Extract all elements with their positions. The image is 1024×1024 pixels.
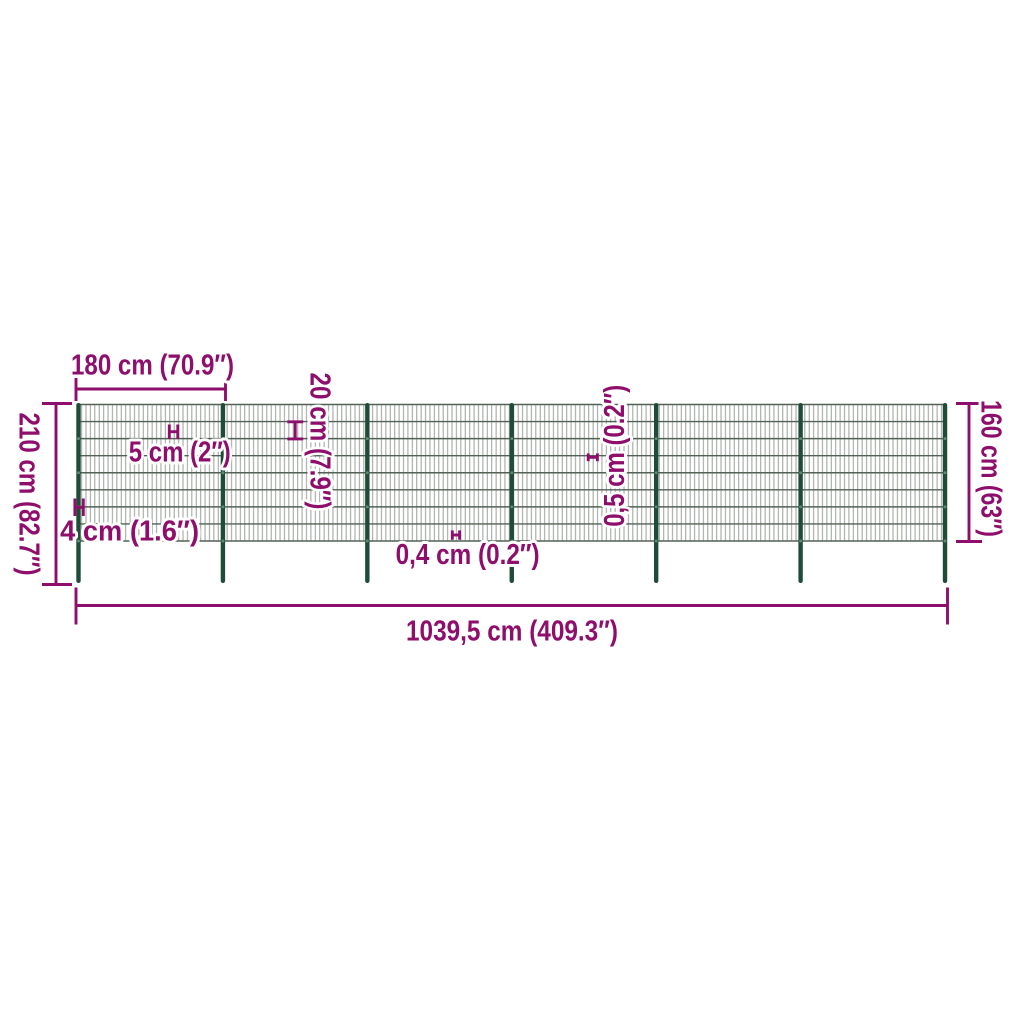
svg-text:20 cm (7.9″): 20 cm (7.9″) (304, 373, 336, 510)
svg-text:0,5 cm (0.2″): 0,5 cm (0.2″) (599, 385, 631, 527)
svg-text:1039,5 cm (409.3″): 1039,5 cm (409.3″) (406, 616, 618, 648)
svg-text:4 cm (1.6″): 4 cm (1.6″) (60, 516, 199, 548)
svg-text:5 cm (2″): 5 cm (2″) (129, 437, 231, 469)
svg-text:160 cm (63″): 160 cm (63″) (975, 400, 1007, 537)
svg-text:180 cm (70.9″): 180 cm (70.9″) (71, 350, 234, 382)
svg-text:210 cm (82.7″): 210 cm (82.7″) (13, 413, 45, 576)
svg-text:0,4 cm (0.2″): 0,4 cm (0.2″) (396, 539, 540, 571)
